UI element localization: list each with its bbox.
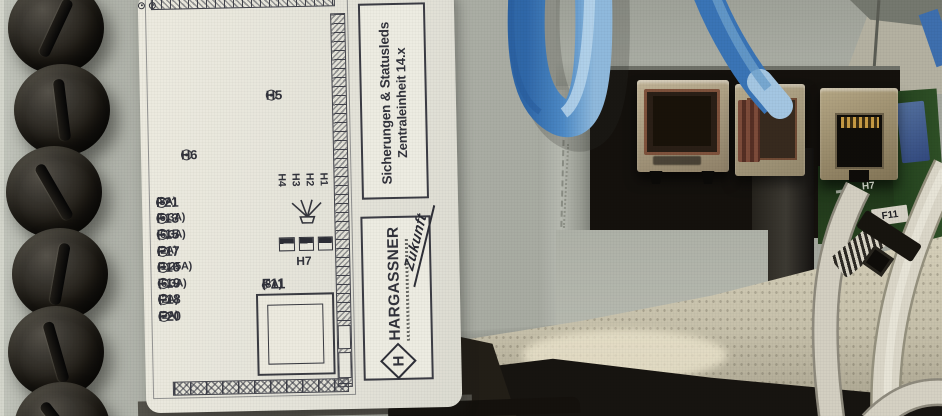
fuse-rating: (6,3A): [156, 212, 185, 225]
connector-icon: [279, 237, 295, 251]
fuse-legend-list: F21(8A) F13(6,3A) F15(6,3A) F17(2A) F16(…: [156, 194, 170, 325]
led-h4-text: H4: [275, 173, 287, 185]
photo-hargassner-control-unit: H7 F11: [0, 0, 942, 416]
led-h7-text: H7: [296, 254, 312, 268]
logo-letter: H: [390, 355, 407, 366]
fuse-rating: (6,3A): [157, 228, 186, 241]
fuse-rating: (2A): [158, 310, 178, 322]
label-title-box: Sicherungen & Statusleds Zentraleinheit …: [358, 2, 429, 199]
fuse-row: F19(6,3A): [158, 275, 169, 292]
brand-text-block: HARGASSNER: [384, 226, 409, 341]
fuse-row: F21(8A): [156, 194, 167, 211]
fuse-rating: (8A): [262, 279, 282, 291]
connector-icons-row: [279, 236, 333, 251]
led-h3-text: H3: [289, 173, 301, 185]
led-h6: H6: [181, 149, 192, 160]
fuse-rating: (6,3A): [158, 277, 187, 290]
fuse-legend-label: H5 H6 H4 H3 H2 H1 H7 F21(8A) F13: [138, 0, 463, 413]
fuse-row: F16(1,25A): [157, 259, 168, 276]
fuse-rating: (2A): [157, 245, 177, 257]
title-line2: Zentraleinheit 14.x: [393, 48, 410, 159]
fuse-row: F18(2A): [158, 292, 169, 309]
led-h2-text: H2: [303, 173, 315, 185]
title-rotated-text: Sicherungen & Statusleds Zentraleinheit …: [360, 4, 427, 201]
fuse-rating: (1,25A): [157, 261, 192, 274]
fuse-rating: (8A): [156, 196, 176, 208]
led-h1-text: H1: [317, 172, 329, 184]
title-line1: Sicherungen & Statusleds: [376, 22, 394, 185]
fuse-row: F17(2A): [157, 243, 168, 260]
fuse-f11-row: F11 (8A): [262, 277, 269, 293]
led-h5-text: H5: [266, 87, 283, 102]
connector-box: [338, 352, 352, 378]
blue-cable-edge-fragment: [928, 12, 942, 64]
connector-icon: [318, 236, 333, 250]
connector-box: [338, 325, 351, 349]
hargassner-diamond-logo: H: [380, 342, 417, 379]
led-row-h1-h4: H4 H3 H2 H1: [275, 172, 329, 185]
fuse-row: F15(6,3A): [157, 226, 168, 243]
fuse-f11-outline: [256, 292, 336, 376]
fuse-row: F20(2A): [158, 308, 169, 325]
led-h6-text: H6: [181, 147, 198, 162]
led-h5: H5: [266, 89, 277, 100]
brand-name: HARGASSNER: [384, 226, 404, 341]
fuse-rating: (2A): [158, 293, 178, 305]
led-rays-icon: [288, 195, 327, 224]
fuse-row: F13(6,3A): [156, 210, 167, 227]
connector-icon: [299, 237, 314, 251]
